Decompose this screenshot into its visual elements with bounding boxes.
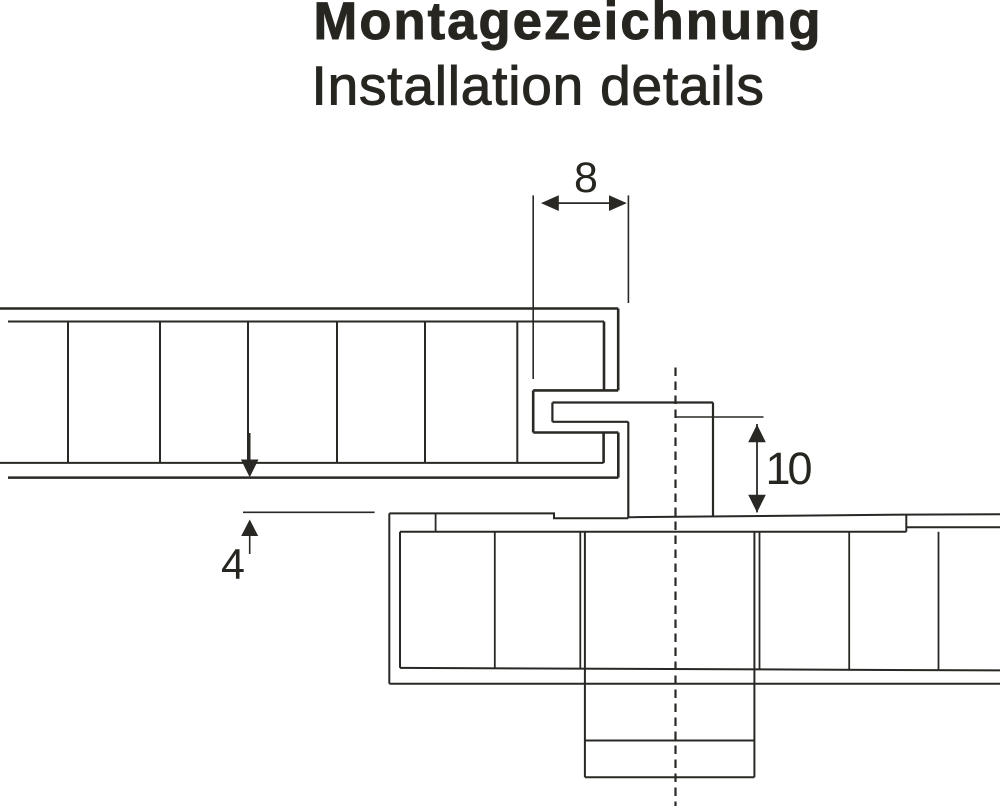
svg-text:4: 4 [221,540,245,588]
svg-text:8: 8 [574,154,598,202]
svg-text:Montagezeichnung: Montagezeichnung [314,0,823,51]
svg-text:10: 10 [766,443,812,494]
svg-text:Installation details: Installation details [312,55,765,117]
